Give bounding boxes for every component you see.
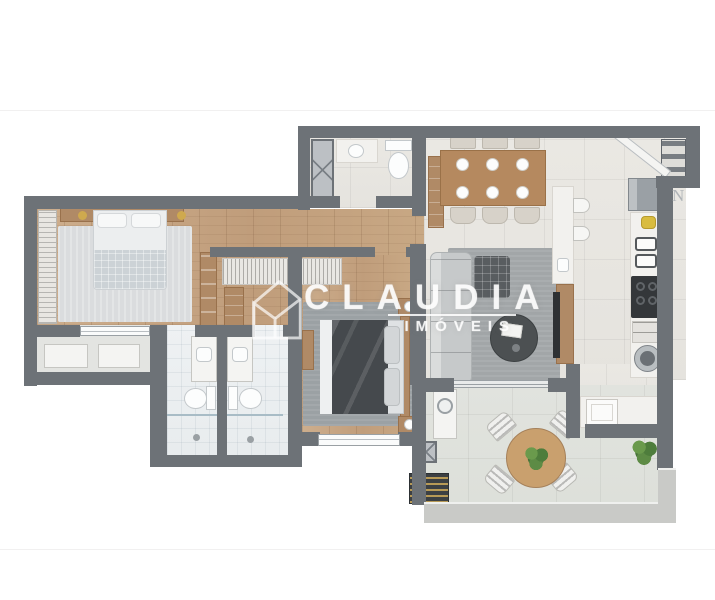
terrace-side-counter	[433, 389, 457, 439]
bathroom1-toilet-bowl	[184, 388, 207, 409]
wall-segment	[24, 196, 37, 386]
tv-screen	[553, 292, 560, 358]
bathroom2-shower-head	[247, 436, 254, 443]
place-setting	[486, 158, 499, 171]
coffee-table-bowl	[512, 344, 520, 352]
lavabo-toilet-bowl	[388, 152, 409, 179]
kitchen-drawers	[632, 321, 659, 343]
dining-chair	[482, 207, 508, 224]
round-sink-basin	[640, 351, 655, 366]
wall-segment	[24, 196, 310, 209]
north-indicator: N	[672, 186, 684, 206]
terrace-counter-bowl	[437, 398, 453, 414]
cooktop-burner	[648, 282, 657, 291]
bathroom1-shower-head	[193, 434, 200, 441]
place-setting	[486, 186, 499, 199]
wall-segment	[412, 385, 426, 505]
bedroom2-dark-blanket	[332, 320, 388, 414]
cooktop-burner	[648, 296, 657, 305]
cooktop-burner	[636, 282, 645, 291]
frame-line-top	[0, 110, 715, 111]
wall-segment	[300, 432, 320, 446]
wall-segment	[566, 364, 580, 438]
kitchen-sink-basin	[635, 254, 657, 268]
utility-shaft	[311, 139, 334, 201]
floor-plan-image: CLAUDIA IMÓVEIS N	[0, 0, 715, 600]
dining-chair	[514, 207, 540, 224]
master-dresser	[200, 252, 217, 328]
bathroom1-toilet-tank	[206, 386, 216, 410]
terrace-plant	[628, 436, 660, 468]
bar-stool	[573, 198, 590, 213]
wall-segment	[195, 325, 255, 337]
bathroom1-shower-glass	[167, 414, 217, 416]
master-bed-pillow	[97, 213, 127, 228]
master-bed-pillow	[131, 213, 161, 228]
frame-line-bottom	[0, 549, 715, 550]
wall-segment	[298, 126, 424, 138]
wall-segment	[217, 332, 227, 458]
wall-segment	[298, 196, 340, 208]
cooktop-burner	[636, 296, 645, 305]
wall-segment	[150, 325, 167, 467]
place-setting	[516, 186, 529, 199]
bedroom2-window	[318, 434, 400, 446]
master-bed-blanket	[94, 250, 166, 289]
lavabo-toilet-tank	[385, 140, 412, 151]
coffee-table	[490, 314, 538, 362]
wall-segment	[548, 378, 570, 392]
bedside-lamp	[177, 211, 186, 220]
bedside-lamp	[78, 211, 87, 220]
bathroom2-sink	[232, 347, 248, 362]
closet-cabinet	[224, 287, 244, 327]
place-setting	[456, 158, 469, 171]
wall-segment	[24, 372, 158, 385]
lavabo-sink	[348, 144, 364, 158]
ac-condenser-unit	[98, 344, 140, 368]
place-setting	[456, 186, 469, 199]
island-sink	[557, 258, 569, 272]
bedroom2-pillow	[384, 326, 400, 364]
wall-segment	[410, 244, 426, 385]
armchair	[474, 256, 510, 298]
laundry-sink	[586, 399, 618, 426]
stand-mixer	[641, 216, 656, 229]
parapet-wall	[658, 468, 676, 523]
closet-hanging-rack	[222, 258, 342, 285]
master-wardrobe	[38, 210, 57, 324]
bathroom1-sink	[196, 347, 212, 362]
wall-segment	[24, 325, 80, 337]
wall-segment	[585, 424, 673, 438]
sofa	[430, 252, 472, 384]
dining-chair	[450, 207, 476, 224]
wall-segment	[412, 126, 426, 216]
bathroom2-toilet-tank	[228, 386, 238, 410]
parapet-wall	[424, 502, 676, 523]
bar-stool	[573, 226, 590, 241]
place-setting	[516, 158, 529, 171]
table-plant	[521, 443, 551, 473]
bathroom2-toilet-bowl	[239, 388, 262, 409]
bedroom2-desk	[302, 330, 314, 370]
bathroom2-shower-glass	[227, 414, 283, 416]
master-bedroom-window	[80, 326, 150, 336]
ac-condenser-unit	[44, 344, 88, 368]
bedroom2-pillow	[384, 368, 400, 406]
wall-segment	[412, 126, 700, 138]
wall-segment	[210, 247, 375, 257]
sliding-door-track	[453, 380, 549, 388]
kitchen-sink-basin	[635, 237, 657, 251]
coffee-table-books	[501, 323, 523, 339]
